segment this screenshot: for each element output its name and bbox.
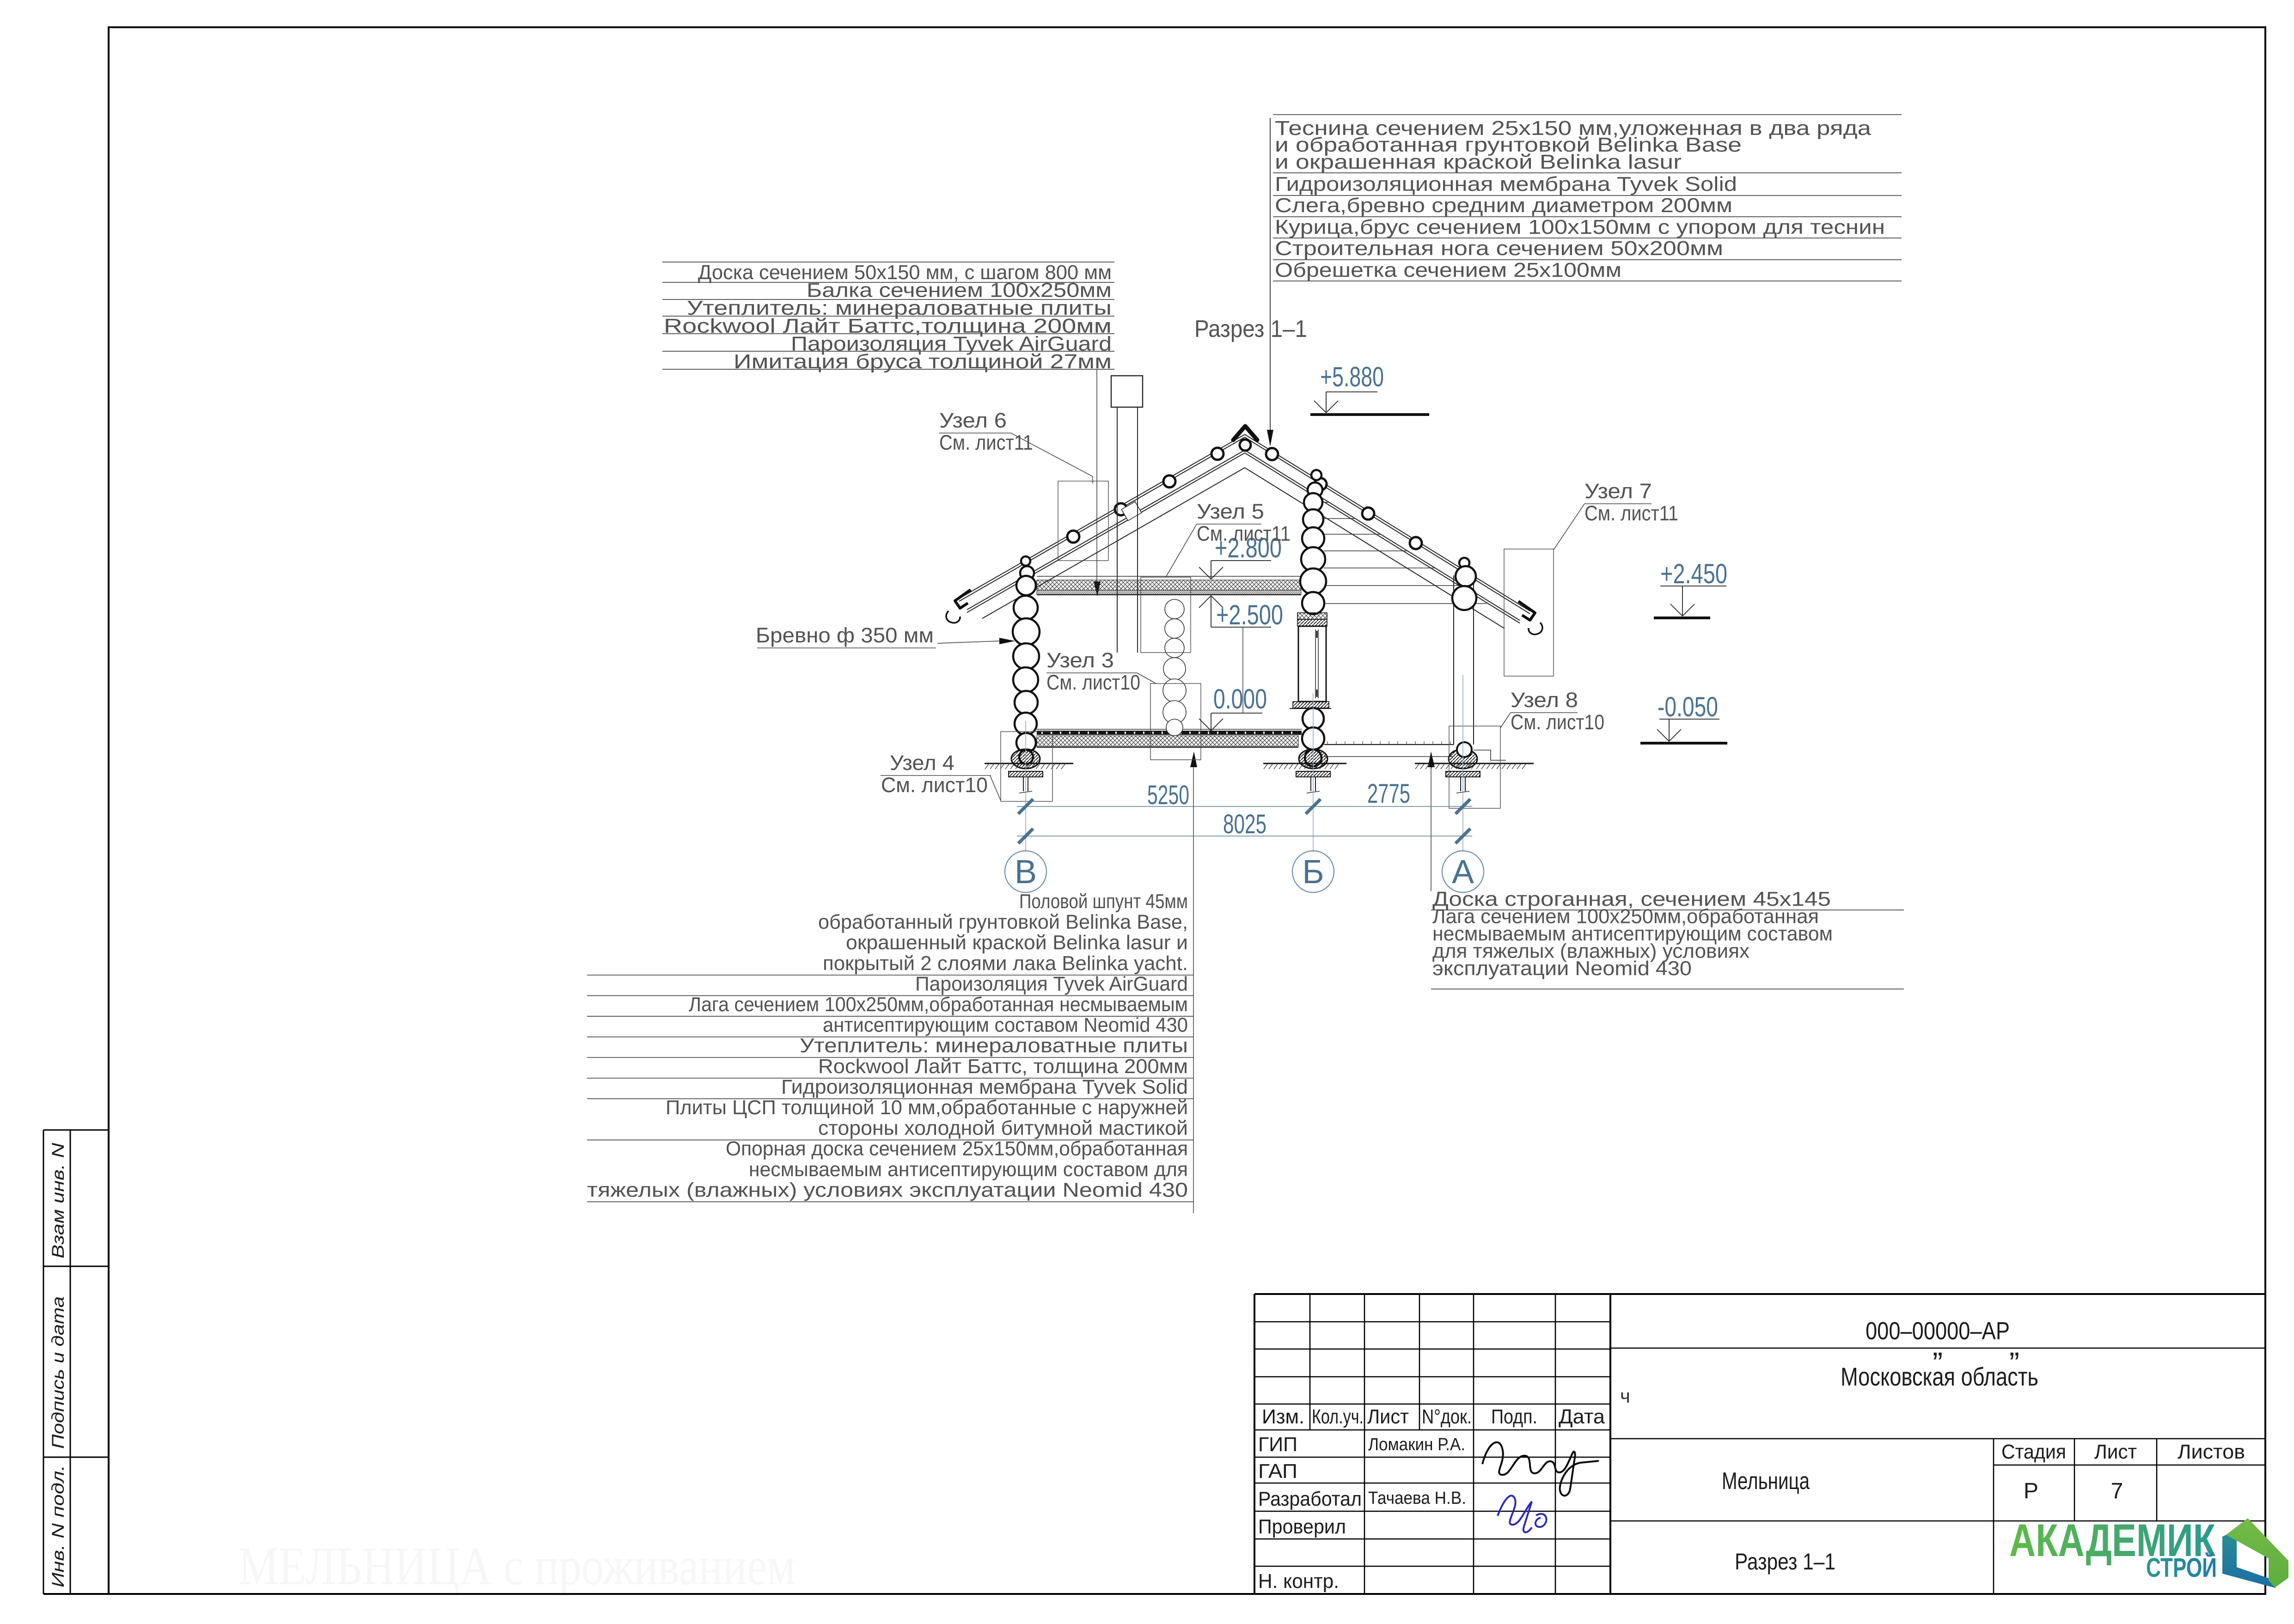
svg-text:+5.880: +5.880: [1320, 361, 1384, 392]
svg-text:Строительная нога сечением 50х: Строительная нога сечением 50х200мм: [1275, 237, 1723, 260]
svg-text:Стадия: Стадия: [2001, 1441, 2066, 1463]
svg-text:Разрез 1–1: Разрез 1–1: [1194, 316, 1307, 342]
svg-text:Утеплитель: минераловатные пл: Утеплитель: минераловатные плиты: [800, 1034, 1188, 1057]
svg-text:Бревно ф 350 мм: Бревно ф 350 мм: [756, 623, 934, 647]
svg-text:Лист: Лист: [1367, 1405, 1409, 1428]
svg-text:Узел 3: Узел 3: [1046, 648, 1114, 672]
svg-text:Проверил: Проверил: [1258, 1515, 1346, 1538]
svg-text:Пароизоляция Tyvek AirGuard: Пароизоляция Tyvek AirGuard: [915, 972, 1188, 995]
svg-text:В: В: [1015, 854, 1037, 891]
svg-text:Листов: Листов: [2178, 1441, 2245, 1463]
svg-text:См. лист11: См. лист11: [1584, 501, 1678, 525]
svg-text:Р: Р: [2024, 1479, 2038, 1503]
svg-text:Имитация бруса толщиной 27мм: Имитация бруса толщиной 27мм: [734, 350, 1112, 373]
svg-text:Курица,брус сечением 100х150мм: Курица,брус сечением 100х150мм с упором …: [1275, 216, 1885, 238]
svg-text:Плиты ЦСП толщиной 10 мм,обраб: Плиты ЦСП толщиной 10 мм,обработанные с …: [666, 1096, 1188, 1119]
svg-text:Опорная доска сечением 25х150м: Опорная доска сечением 25х150мм,обработа…: [726, 1137, 1188, 1160]
svg-text:Тачаева Н.В.: Тачаева Н.В.: [1368, 1489, 1466, 1508]
svg-text:8025: 8025: [1223, 809, 1266, 839]
svg-text:тяжелых (влажных) условиях экс: тяжелых (влажных) условиях эксплуатации …: [587, 1178, 1188, 1201]
svg-text:Б: Б: [1302, 854, 1324, 891]
svg-text:антисептирующим составом Neomi: антисептирующим составом Neomid 430: [823, 1014, 1188, 1037]
svg-text:Разработал: Разработал: [1258, 1488, 1362, 1510]
svg-text:+2.500: +2.500: [1216, 599, 1283, 630]
svg-text:Подп.: Подп.: [1491, 1405, 1537, 1428]
svg-text:ГАП: ГАП: [1258, 1460, 1297, 1483]
svg-text:покрытый 2 слоями лака Belinka: покрытый 2 слоями лака Belinka yacht.: [823, 952, 1188, 975]
svg-text:Дата: Дата: [1559, 1405, 1605, 1428]
svg-text:ГИП: ГИП: [1258, 1433, 1297, 1456]
svg-text:стороны холодной битумной маст: стороны холодной битумной мастикой: [818, 1117, 1188, 1140]
svg-text:0.000: 0.000: [1213, 684, 1267, 714]
svg-text:несмываемым антисептирующим со: несмываемым антисептирующим составом для: [749, 1158, 1188, 1181]
svg-text:МЕЛЬНИЦА с проживанием: МЕЛЬНИЦА с проживанием: [239, 1536, 795, 1596]
svg-text:Ломакин Р.А.: Ломакин Р.А.: [1368, 1435, 1465, 1454]
svg-text:эксплуатации Neomid 430: эксплуатации Neomid 430: [1432, 957, 1692, 980]
svg-text:Узел 6: Узел 6: [939, 409, 1007, 432]
svg-text:+2.450: +2.450: [1660, 558, 1727, 589]
svg-text:Узел 4: Узел 4: [890, 751, 954, 775]
svg-text:А: А: [1452, 854, 1474, 891]
svg-text:Узел 5: Узел 5: [1197, 500, 1264, 523]
svg-text:Гидроизоляционная мембрана Tyv: Гидроизоляционная мембрана Tyvek Solid: [1275, 173, 1737, 195]
svg-text:Н. контр.: Н. контр.: [1258, 1570, 1339, 1593]
svg-text:Половой шпунт 45мм: Половой шпунт 45мм: [1019, 890, 1188, 913]
svg-text:См. лист11: См. лист11: [939, 431, 1033, 454]
svg-text:Подпись и дата: Подпись и дата: [49, 1296, 67, 1449]
svg-text:Обрешетка сечением 25х100мм: Обрешетка сечением 25х100мм: [1275, 259, 1621, 281]
svg-text:и окрашенная краской Belinka l: и окрашенная краской Belinka lasur: [1275, 151, 1682, 173]
svg-text:ч: ч: [1620, 1385, 1630, 1407]
svg-text:окрашенный краской Belinka las: окрашенный краской Belinka lasur и: [846, 931, 1188, 954]
svg-text:См. лист11: См. лист11: [1197, 522, 1291, 545]
svg-text:-0.050: -0.050: [1658, 691, 1718, 722]
svg-text:Гидроизоляционная мембрана Tyv: Гидроизоляционная мембрана Tyvek Solid: [781, 1075, 1188, 1098]
svg-text:См. лист10: См. лист10: [1511, 710, 1604, 734]
svg-text:Изм.: Изм.: [1262, 1405, 1304, 1428]
svg-text:Узел 7: Узел 7: [1584, 479, 1652, 503]
svg-text:Разрез 1–1: Разрез 1–1: [1735, 1549, 1835, 1575]
svg-text:Лага сечением 100х250мм,обрабо: Лага сечением 100х250мм,обработанная нес…: [689, 993, 1188, 1016]
svg-text:СТРОЙ: СТРОЙ: [2146, 1553, 2217, 1583]
svg-text:См. лист10: См. лист10: [881, 773, 988, 797]
svg-text:Лист: Лист: [2094, 1441, 2137, 1463]
svg-text:5250: 5250: [1147, 780, 1189, 810]
svg-text:Слега,бревно средним диаметром: Слега,бревно средним диаметром 200мм: [1275, 194, 1732, 217]
svg-text:7: 7: [2111, 1479, 2123, 1503]
svg-text:См. лист10: См. лист10: [1046, 671, 1140, 694]
svg-text:Rockwool Лайт Баттс, толщина: Rockwool Лайт Баттс, толщина 200мм: [818, 1055, 1188, 1078]
svg-text:N°док.: N°док.: [1422, 1405, 1472, 1428]
svg-text:Кол.уч.: Кол.уч.: [1312, 1405, 1364, 1428]
svg-text:000–00000–АР: 000–00000–АР: [1866, 1317, 2010, 1345]
svg-text:2775: 2775: [1367, 779, 1410, 809]
svg-text:Узел 8: Узел 8: [1511, 688, 1578, 712]
svg-text:обработанный грунтовкой Belink: обработанный грунтовкой Belinka Base,: [818, 911, 1188, 934]
svg-text:Мельница: Мельница: [1722, 1468, 1810, 1495]
svg-text:Взам инв. N: Взам инв. N: [49, 1143, 67, 1258]
svg-text:Московская область: Московская область: [1841, 1362, 2038, 1391]
svg-text:Инв. N подл.: Инв. N подл.: [49, 1465, 67, 1587]
